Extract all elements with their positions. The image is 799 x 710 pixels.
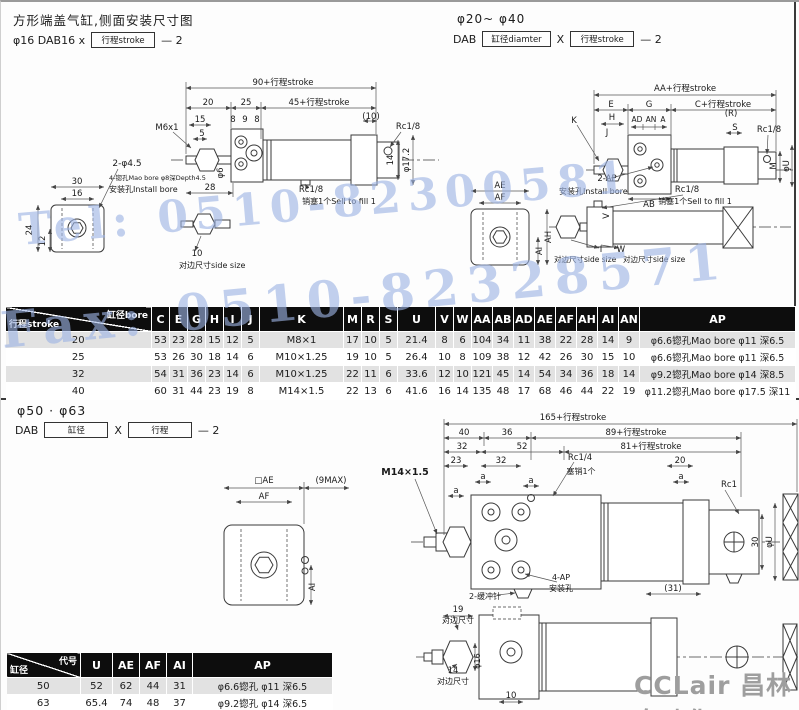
data-cell: 14 xyxy=(224,349,242,366)
dim-label: 52 xyxy=(517,442,528,452)
data-cell: 15 xyxy=(206,332,224,349)
dim-label: M xyxy=(769,162,779,169)
data-cell: 23 xyxy=(206,366,224,383)
data-cell: 12 xyxy=(224,332,242,349)
dim-label: 对边尺寸side size xyxy=(554,254,617,264)
dim-label: 20 xyxy=(675,456,686,466)
column-header: AB xyxy=(493,307,514,332)
drawing-phi16-cylinder: 90+行程stroke202545+行程stroke(10)155M6x1898… xyxy=(21,62,461,302)
model-prefix: DAB xyxy=(15,424,38,437)
row-label-bore: 50 xyxy=(7,678,81,695)
data-cell: 18 xyxy=(598,366,619,383)
data-cell: 46 xyxy=(556,383,577,400)
data-cell: M10×1.25 xyxy=(260,349,344,366)
data-cell: 54 xyxy=(152,366,170,383)
model-prefix: φ16 DAB16 x xyxy=(13,34,85,47)
dim-label: 19 xyxy=(453,605,464,615)
corner-top-label: 缸径bore xyxy=(107,308,148,321)
dim-label: I xyxy=(600,245,603,255)
dim-label: AN xyxy=(646,115,657,124)
data-cell: 9 xyxy=(619,332,640,349)
dim-label: W xyxy=(617,245,626,255)
data-cell: 12 xyxy=(514,349,535,366)
dim-label: φ6 xyxy=(216,167,226,178)
dim-label: 90+行程stroke xyxy=(252,77,313,88)
dim-label: 12 xyxy=(38,236,48,247)
column-header: AE xyxy=(535,307,556,332)
row-label-bore: 25 xyxy=(6,349,152,366)
dim-label: (31) xyxy=(664,584,681,594)
data-cell: 6 xyxy=(380,366,398,383)
data-cell: 15 xyxy=(598,349,619,366)
data-cell: 10 xyxy=(436,349,454,366)
column-header: AH xyxy=(577,307,598,332)
data-cell: 65.4 xyxy=(81,695,113,710)
column-header: U xyxy=(81,653,113,678)
data-cell: 8 xyxy=(436,332,454,349)
dim-label: AD xyxy=(632,115,643,124)
company-logo: CCLair 昌林自动化 xyxy=(634,666,799,710)
dim-label: 89+行程stroke xyxy=(605,427,666,438)
data-cell: 41.6 xyxy=(398,383,436,400)
table-row: 2553263018146M10×1.251910526.41081093812… xyxy=(6,349,796,366)
dim-label: □AE xyxy=(254,476,273,486)
data-cell: 17 xyxy=(514,383,535,400)
table-row: 2053232815125M8×11710521.486104341138222… xyxy=(6,332,796,349)
dim-label: 2-缓冲针 xyxy=(469,591,501,601)
dim-label: 40 xyxy=(459,428,470,438)
column-header: AF xyxy=(556,307,577,332)
dim-label: Rc1/4 xyxy=(568,453,592,463)
data-cell: 5 xyxy=(242,332,260,349)
column-header: E xyxy=(170,307,188,332)
stroke-box: 行程stroke xyxy=(570,31,634,47)
dim-label: AF xyxy=(259,492,270,502)
data-cell: 42 xyxy=(535,349,556,366)
data-cell: φ9.2锪孔Mao bore φ14 深8.5 xyxy=(640,366,796,383)
dim-label: E xyxy=(608,100,613,110)
dim-label: 4-锪孔Mao bore φ8深Depth4.5 xyxy=(109,173,206,182)
row-label-bore: 63 xyxy=(7,695,81,710)
dim-label: AB xyxy=(643,200,655,210)
column-header: U xyxy=(398,307,436,332)
data-cell: 135 xyxy=(472,383,493,400)
data-cell: 54 xyxy=(535,366,556,383)
data-cell: 36 xyxy=(188,366,206,383)
dim-label: 对边尺寸 xyxy=(442,615,474,625)
dim-label: Rc1 xyxy=(721,480,737,490)
dim-label: AH xyxy=(544,231,554,243)
data-cell: 31 xyxy=(167,678,193,695)
data-cell: 23 xyxy=(170,332,188,349)
data-cell: 38 xyxy=(535,332,556,349)
corner-bottom-label: 行程stroke xyxy=(9,317,59,330)
dim-label: a xyxy=(453,486,458,496)
data-cell: 26 xyxy=(556,349,577,366)
data-cell: 10 xyxy=(454,366,472,383)
dim-label: a xyxy=(480,472,485,482)
dim-label: J xyxy=(605,128,609,138)
data-cell: 68 xyxy=(535,383,556,400)
dim-label: 28 xyxy=(205,183,216,193)
data-cell: 8 xyxy=(454,349,472,366)
dim-label: φU xyxy=(782,160,792,172)
data-cell: 38 xyxy=(493,349,514,366)
dim-label: AA+行程stroke xyxy=(654,83,716,94)
dim-label: AI xyxy=(308,583,318,591)
dimension-table-20-40: 缸径bore行程strokeCEGHIJKMRSUVWAAABADAEAFAHA… xyxy=(5,306,796,400)
column-header: W xyxy=(454,307,472,332)
data-cell: 11 xyxy=(362,366,380,383)
column-header: J xyxy=(242,307,260,332)
data-cell: φ9.2锪孔 φ14 深6.5 xyxy=(193,695,333,710)
column-header: G xyxy=(188,307,206,332)
data-cell: 5 xyxy=(380,332,398,349)
table-row: 3254313623146M10×1.252211633.61210121451… xyxy=(6,366,796,383)
bore-range-20-40: φ20~ φ40 xyxy=(457,12,525,26)
dim-label: 10 xyxy=(506,691,517,701)
dim-label: H xyxy=(609,113,615,123)
dim-label: a xyxy=(678,472,683,482)
data-cell: 28 xyxy=(188,332,206,349)
data-cell: 5 xyxy=(380,349,398,366)
data-cell: 109 xyxy=(472,349,493,366)
dim-label: φ17.2 xyxy=(402,148,412,173)
data-cell: 6 xyxy=(380,383,398,400)
dim-label: 30 xyxy=(72,177,83,187)
data-cell: 11 xyxy=(514,332,535,349)
data-cell: 48 xyxy=(140,695,167,710)
data-cell: 22 xyxy=(344,366,362,383)
column-header: AI xyxy=(598,307,619,332)
model-suffix: — 2 xyxy=(640,33,662,46)
dim-label: 23 xyxy=(451,456,462,466)
model-x: X xyxy=(557,33,565,46)
dim-label: 安装孔Install bore xyxy=(559,186,628,196)
data-cell: 19 xyxy=(344,349,362,366)
data-cell: 53 xyxy=(152,332,170,349)
data-cell: 6 xyxy=(242,349,260,366)
dim-label: Rc1/8 xyxy=(675,185,699,195)
data-cell: 31 xyxy=(170,366,188,383)
column-header: AN xyxy=(619,307,640,332)
dim-label: V xyxy=(602,213,612,219)
dim-label: 5 xyxy=(199,129,204,139)
data-cell: 14 xyxy=(224,366,242,383)
dim-label: 10 xyxy=(192,249,203,259)
dim-label: (9MAX) xyxy=(315,476,346,486)
dim-label: AE xyxy=(494,181,505,191)
model-prefix: DAB xyxy=(453,33,476,46)
data-cell: 26.4 xyxy=(398,349,436,366)
dim-label: a xyxy=(528,476,533,486)
data-cell: 14 xyxy=(514,366,535,383)
data-cell: 44 xyxy=(188,383,206,400)
data-cell: 44 xyxy=(140,678,167,695)
column-header: K xyxy=(260,307,344,332)
dim-label: 20 xyxy=(203,98,214,108)
column-header: S xyxy=(380,307,398,332)
dim-label: 25 xyxy=(241,98,252,108)
data-cell: 60 xyxy=(152,383,170,400)
table-corner-header: 缸径bore行程stroke xyxy=(6,307,152,332)
row-label-bore: 40 xyxy=(6,383,152,400)
row-label-bore: 32 xyxy=(6,366,152,383)
dim-label: 81+行程stroke xyxy=(620,441,681,452)
data-cell: 23 xyxy=(206,383,224,400)
dim-label: 8 xyxy=(230,115,235,125)
data-cell: 10 xyxy=(362,349,380,366)
dim-label: Rc1/8 xyxy=(299,185,323,195)
bore-box: 缸径 xyxy=(44,422,108,438)
model-suffix: — 2 xyxy=(161,34,183,47)
data-cell: 13 xyxy=(362,383,380,400)
dim-label: G xyxy=(646,100,653,110)
corner-bottom-label: 缸径 xyxy=(10,663,28,676)
data-cell: 34 xyxy=(556,366,577,383)
dim-label: 4-AP xyxy=(552,573,570,582)
dim-label: 销塞1个Sell to fill 1 xyxy=(658,196,732,206)
row-label-bore: 20 xyxy=(6,332,152,349)
data-cell: 34 xyxy=(493,332,514,349)
column-header: C xyxy=(152,307,170,332)
data-cell: 121 xyxy=(472,366,493,383)
drawing-phi20-40-cylinder: AA+行程strokeEGC+行程strokeKHJADANA(R)SRc1/8… xyxy=(461,77,796,302)
page-title: 方形端盖气缸,侧面安装尺寸图 xyxy=(13,10,193,29)
data-cell: φ11.2锪孔Mao bore φ17.5 深11 xyxy=(640,383,796,400)
column-header: AP xyxy=(640,307,796,332)
dim-label: φU xyxy=(765,536,775,548)
dim-label: M6x1 xyxy=(155,123,178,133)
table-corner-header: 代号缸径 xyxy=(7,653,81,678)
dim-label: M14×1.5 xyxy=(381,467,428,478)
dimension-table-50-63: 代号缸径UAEAFAIAP5052624431φ6.6锪孔 φ11 深6.563… xyxy=(6,652,333,710)
table-row: 5052624431φ6.6锪孔 φ11 深6.5 xyxy=(7,678,333,695)
column-header: AI xyxy=(167,653,193,678)
data-cell: 18 xyxy=(206,349,224,366)
dim-label: 15 xyxy=(195,115,206,125)
column-header: V xyxy=(436,307,454,332)
dim-label: (R) xyxy=(725,109,738,119)
data-cell: 22 xyxy=(556,332,577,349)
dim-label: (10) xyxy=(362,112,379,122)
data-cell: 17 xyxy=(344,332,362,349)
data-cell: 16 xyxy=(436,383,454,400)
dim-label: A xyxy=(660,115,666,124)
dim-label: Rc1/8 xyxy=(757,125,781,135)
column-header: M xyxy=(344,307,362,332)
table-row: 4060314423198M14×1.52213641.616141354817… xyxy=(6,383,796,400)
dim-label: AI xyxy=(535,247,545,255)
data-cell: 6 xyxy=(242,366,260,383)
data-cell: 30 xyxy=(188,349,206,366)
model-code-20-40: DAB 缸径diamter X 行程stroke — 2 xyxy=(453,31,662,47)
dim-label: 安装孔Install bore xyxy=(109,184,178,194)
dim-label: 24 xyxy=(25,225,35,236)
data-cell: 22 xyxy=(344,383,362,400)
dim-label: 安装孔 xyxy=(549,583,573,593)
data-cell: 14 xyxy=(598,332,619,349)
dim-label: 塞销1个 xyxy=(566,466,595,476)
dim-label: 销塞1个Sell to fill 1 xyxy=(302,196,376,206)
data-cell: 19 xyxy=(619,383,640,400)
data-cell: M14×1.5 xyxy=(260,383,344,400)
data-cell: 28 xyxy=(577,332,598,349)
data-cell: 10 xyxy=(619,349,640,366)
dim-label: AF xyxy=(495,193,506,203)
dim-label: 32 xyxy=(496,456,507,466)
dim-label: Rc1/8 xyxy=(396,122,420,132)
column-header: I xyxy=(224,307,242,332)
bore-range-50-63: φ50 · φ63 xyxy=(17,403,86,418)
data-cell: 74 xyxy=(113,695,140,710)
data-cell: φ6.6锪孔 φ11 深6.5 xyxy=(193,678,333,695)
data-cell: 62 xyxy=(113,678,140,695)
dim-label: 对边尺寸side size xyxy=(179,260,246,270)
dim-label: 2-AP xyxy=(597,174,616,184)
data-cell: 104 xyxy=(472,332,493,349)
model-code-16: φ16 DAB16 x 行程stroke — 2 xyxy=(13,32,183,48)
data-cell: M8×1 xyxy=(260,332,344,349)
data-cell: 33.6 xyxy=(398,366,436,383)
dim-label: 32 xyxy=(457,442,468,452)
data-cell: 52 xyxy=(81,678,113,695)
dim-label: 14 xyxy=(386,155,396,166)
dim-label: 8 xyxy=(254,115,259,125)
dim-label: S xyxy=(732,123,737,133)
dim-label: 45+行程stroke xyxy=(288,97,349,108)
dim-label: 30 xyxy=(751,537,761,548)
dim-label: 165+行程stroke xyxy=(540,412,606,423)
data-cell: φ6.6锪孔Mao bore φ11 深6.5 xyxy=(640,332,796,349)
data-cell: 48 xyxy=(493,383,514,400)
data-cell: 30 xyxy=(577,349,598,366)
dim-label: K xyxy=(571,116,577,126)
column-header: AA xyxy=(472,307,493,332)
corner-top-label: 代号 xyxy=(59,654,77,667)
column-header: AD xyxy=(514,307,535,332)
bore-box: 缸径diamter xyxy=(482,31,550,47)
data-cell: 8 xyxy=(242,383,260,400)
data-cell: 6 xyxy=(454,332,472,349)
stroke-box: 行程stroke xyxy=(91,32,155,48)
column-header: AP xyxy=(193,653,333,678)
dim-label: 36 xyxy=(502,428,513,438)
data-cell: 10 xyxy=(362,332,380,349)
model-x: X xyxy=(114,424,122,437)
table-row: 6365.4744837φ9.2锪孔 φ14 深6.5 xyxy=(7,695,333,710)
data-cell: 14 xyxy=(454,383,472,400)
data-cell: 37 xyxy=(167,695,193,710)
dim-label: 9 xyxy=(242,115,247,125)
dim-label: 14 xyxy=(448,666,459,676)
data-cell: 21.4 xyxy=(398,332,436,349)
dim-label: φ16 xyxy=(473,653,482,668)
data-cell: 44 xyxy=(577,383,598,400)
data-cell: 31 xyxy=(170,383,188,400)
column-header: AE xyxy=(113,653,140,678)
dim-label: 对边尺寸 xyxy=(437,676,469,686)
column-header: H xyxy=(206,307,224,332)
column-header: AF xyxy=(140,653,167,678)
dim-label: 2-φ4.5 xyxy=(112,159,141,169)
data-cell: 53 xyxy=(152,349,170,366)
column-header: R xyxy=(362,307,380,332)
data-cell: 36 xyxy=(577,366,598,383)
data-cell: 14 xyxy=(619,366,640,383)
data-cell: 22 xyxy=(598,383,619,400)
dim-label: C+行程stroke xyxy=(695,99,751,110)
data-cell: 12 xyxy=(436,366,454,383)
data-cell: 45 xyxy=(493,366,514,383)
data-cell: M10×1.25 xyxy=(260,366,344,383)
dim-label: 16 xyxy=(72,189,83,199)
data-cell: 26 xyxy=(170,349,188,366)
data-cell: 19 xyxy=(224,383,242,400)
catalog-page: 方形端盖气缸,侧面安装尺寸图 φ16 DAB16 x 行程stroke — 2 … xyxy=(0,0,799,710)
data-cell: φ6.6锪孔Mao bore φ11 深6.5 xyxy=(640,349,796,366)
dim-label: 对边尺寸side size xyxy=(623,254,686,264)
